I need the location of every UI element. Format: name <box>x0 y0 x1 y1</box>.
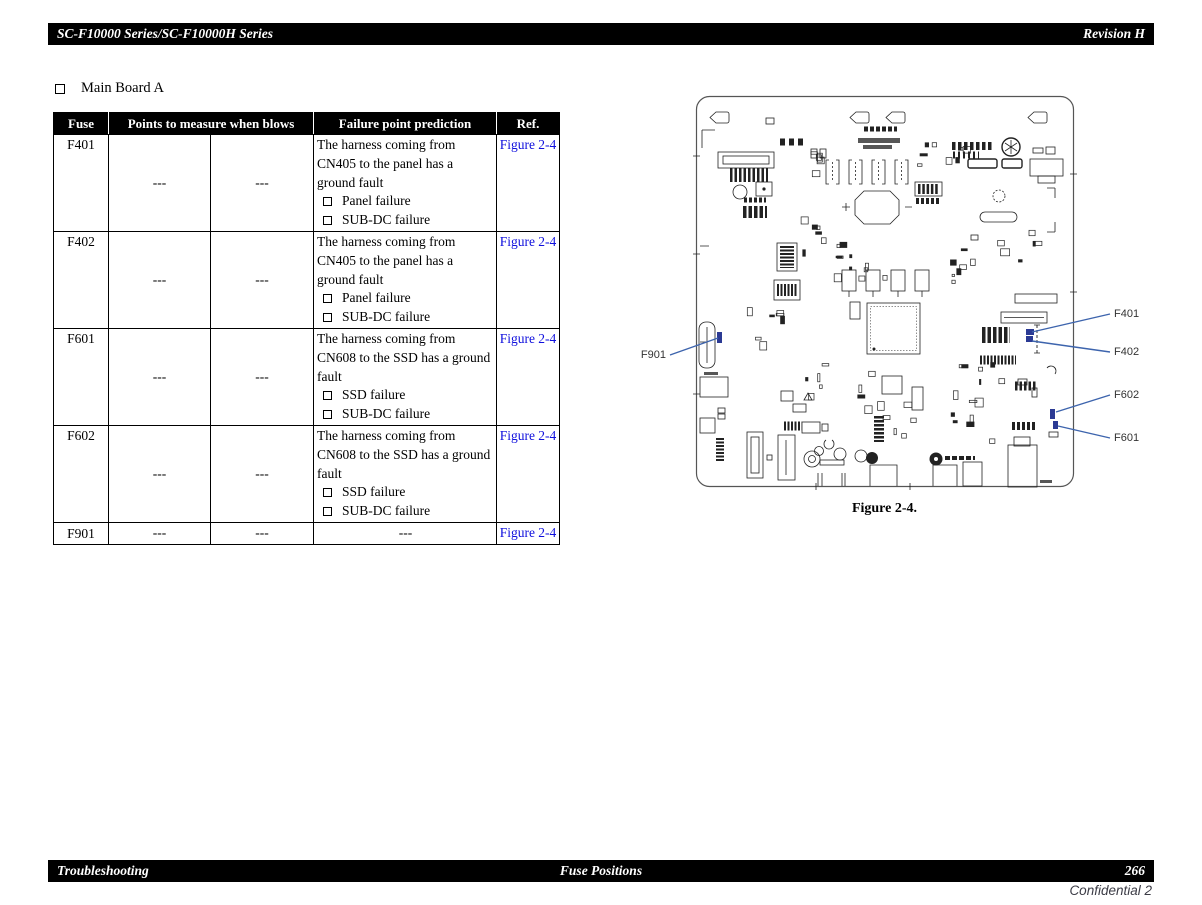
prediction-cell: The harness coming from CN405 to the pan… <box>314 135 497 232</box>
board-outline <box>697 97 1074 487</box>
fuse-f601-marker <box>1053 421 1058 429</box>
figure-ref-link[interactable]: Figure 2-4 <box>500 525 557 540</box>
failure-item: Panel failure <box>317 289 494 308</box>
measure-cell: --- <box>109 135 211 232</box>
board-svg <box>628 90 1184 525</box>
fuse-id-cell: F901 <box>54 522 109 544</box>
table-row-f401: F401 --- --- The harness coming from CN4… <box>54 135 560 232</box>
failure-item-label: Panel failure <box>342 289 411 308</box>
fuse-id-cell: F601 <box>54 328 109 425</box>
measure-cell: --- <box>109 231 211 328</box>
page-number: 266 <box>1125 863 1145 879</box>
failure-item-label: Panel failure <box>342 192 411 211</box>
prediction-cell: The harness coming from CN405 to the pan… <box>314 231 497 328</box>
failure-item-label: SUB-DC failure <box>342 308 430 327</box>
prediction-text: The harness coming from CN405 to the pan… <box>317 136 494 192</box>
measure-cell: --- <box>211 328 314 425</box>
footer-topic-label: Fuse Positions <box>48 863 1154 879</box>
failure-item: SUB-DC failure <box>317 405 494 424</box>
prediction-text: The harness coming from CN608 to the SSD… <box>317 427 494 483</box>
board-diagram: F901 F401 F402 F602 F601 Figure 2-4. <box>628 90 1184 525</box>
fuse-id-cell: F401 <box>54 135 109 232</box>
measure-cell: --- <box>211 231 314 328</box>
measure-cell: --- <box>109 328 211 425</box>
footer-bar: Troubleshooting Fuse Positions 266 <box>48 860 1154 882</box>
measure-cell: --- <box>211 425 314 522</box>
checkbox-icon <box>323 391 332 400</box>
header-bar: SC-F10000 Series/SC-F10000H Series Revis… <box>48 23 1154 45</box>
checkbox-icon <box>323 216 332 225</box>
col-header-fuse: Fuse <box>54 113 109 135</box>
footer-chapter-label: Troubleshooting <box>57 863 149 879</box>
figure-ref-cell: Figure 2-4 <box>497 328 560 425</box>
callout-label-f402: F402 <box>1114 345 1139 359</box>
col-header-points: Points to measure when blows <box>109 113 314 135</box>
failure-item: SUB-DC failure <box>317 308 494 327</box>
measure-cell: --- <box>109 425 211 522</box>
failure-item: Panel failure <box>317 192 494 211</box>
fuse-f602-marker <box>1050 409 1055 419</box>
callout-label-f401: F401 <box>1114 307 1139 321</box>
failure-item-label: SSD failure <box>342 386 405 405</box>
callout-label-f601: F601 <box>1114 431 1139 445</box>
failure-item: SUB-DC failure <box>317 211 494 230</box>
section-checkbox-icon <box>55 84 65 94</box>
checkbox-icon <box>323 197 332 206</box>
failure-item-label: SUB-DC failure <box>342 502 430 521</box>
measure-cell: --- <box>109 522 211 544</box>
col-header-ref: Ref. <box>497 113 560 135</box>
measure-cell: --- <box>211 522 314 544</box>
section-heading: Main Board A <box>55 80 164 97</box>
table-row-f402: F402 --- --- The harness coming from CN4… <box>54 231 560 328</box>
measure-cell: --- <box>211 135 314 232</box>
fuse-id-cell: F402 <box>54 231 109 328</box>
prediction-text: The harness coming from CN608 to the SSD… <box>317 330 494 386</box>
confidential-label: Confidential 2 <box>1069 883 1152 898</box>
table-row-f601: F601 --- --- The harness coming from CN6… <box>54 328 560 425</box>
figure-ref-link[interactable]: Figure 2-4 <box>500 331 557 346</box>
prediction-text: The harness coming from CN405 to the pan… <box>317 233 494 289</box>
figure-caption: Figure 2-4. <box>696 501 1073 517</box>
prediction-cell: The harness coming from CN608 to the SSD… <box>314 425 497 522</box>
col-header-prediction: Failure point prediction <box>314 113 497 135</box>
failure-item-label: SSD failure <box>342 483 405 502</box>
failure-item-label: SUB-DC failure <box>342 405 430 424</box>
fuse-f402-marker <box>1026 336 1033 342</box>
figure-ref-cell: Figure 2-4 <box>497 135 560 232</box>
figure-ref-cell: Figure 2-4 <box>497 425 560 522</box>
checkbox-icon <box>323 313 332 322</box>
callout-label-f602: F602 <box>1114 388 1139 402</box>
figure-ref-link[interactable]: Figure 2-4 <box>500 137 557 152</box>
failure-item-label: SUB-DC failure <box>342 211 430 230</box>
checkbox-icon <box>323 507 332 516</box>
table-row-f901: F901 --- --- --- Figure 2-4 <box>54 522 560 544</box>
failure-item: SUB-DC failure <box>317 502 494 521</box>
fuse-id-cell: F602 <box>54 425 109 522</box>
prediction-cell: The harness coming from CN608 to the SSD… <box>314 328 497 425</box>
table-header-row: Fuse Points to measure when blows Failur… <box>54 113 560 135</box>
figure-ref-cell: Figure 2-4 <box>497 522 560 544</box>
prediction-cell: --- <box>314 522 497 544</box>
figure-ref-link[interactable]: Figure 2-4 <box>500 234 557 249</box>
failure-item: SSD failure <box>317 386 494 405</box>
figure-ref-link[interactable]: Figure 2-4 <box>500 428 557 443</box>
revision-label: Revision H <box>1083 26 1145 42</box>
checkbox-icon <box>323 410 332 419</box>
section-title: Main Board A <box>81 80 164 97</box>
checkbox-icon <box>323 488 332 497</box>
fuse-table: Fuse Points to measure when blows Failur… <box>53 112 560 545</box>
callout-label-f901: F901 <box>628 348 666 362</box>
table-row-f602: F602 --- --- The harness coming from CN6… <box>54 425 560 522</box>
doc-title: SC-F10000 Series/SC-F10000H Series <box>57 26 273 42</box>
failure-item: SSD failure <box>317 483 494 502</box>
manual-page: SC-F10000 Series/SC-F10000H Series Revis… <box>0 0 1202 905</box>
checkbox-icon <box>323 294 332 303</box>
figure-ref-cell: Figure 2-4 <box>497 231 560 328</box>
